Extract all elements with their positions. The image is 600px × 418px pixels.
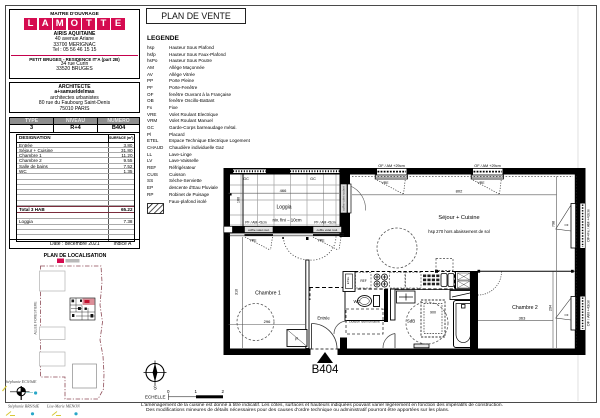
- svg-text:OF: OF: [565, 313, 569, 317]
- svg-text:Stéphanie ECS/SdE: Stéphanie ECS/SdE: [5, 379, 37, 384]
- svg-text:VRE: VRE: [382, 181, 390, 185]
- svg-text:Chambre 2: Chambre 2: [512, 305, 538, 311]
- svg-text:OF / AM +29cm: OF / AM +29cm: [378, 164, 404, 168]
- svg-text:REF: REF: [360, 279, 366, 283]
- svg-text:900: 900: [430, 311, 436, 315]
- svg-text:2: 2: [222, 389, 225, 394]
- svg-text:coffre volet roul.: coffre volet roul.: [317, 228, 338, 232]
- svg-text:798: 798: [552, 221, 556, 227]
- svg-text:ETEL: ETEL: [346, 276, 350, 284]
- svg-text:pl.: pl.: [295, 337, 299, 341]
- svg-text:296: 296: [264, 319, 271, 324]
- svg-text:cloison démontable: cloison démontable: [349, 320, 380, 324]
- svg-text:160: 160: [237, 197, 241, 203]
- svg-text:coffre volet roul.: coffre volet roul.: [248, 228, 269, 232]
- svg-text:Chambre 1: Chambre 1: [255, 291, 281, 297]
- svg-text:VRE: VRE: [478, 181, 486, 185]
- svg-text:ALLEE FORESTIERE: ALLEE FORESTIERE: [34, 301, 38, 335]
- svg-text:Entrée: Entrée: [317, 316, 330, 321]
- svg-text:PF / AM +5cm: PF / AM +5cm: [314, 221, 336, 225]
- svg-text:Lise-Marie MENON: Lise-Marie MENON: [46, 404, 80, 409]
- svg-text:SdB: SdB: [407, 319, 415, 324]
- svg-text:S: S: [153, 386, 157, 392]
- svg-text:Séjour + Cuisine: Séjour + Cuisine: [438, 215, 479, 221]
- svg-text:GC: GC: [243, 177, 249, 181]
- svg-text:WC: WC: [354, 299, 361, 304]
- svg-text:Loggia: Loggia: [276, 205, 291, 211]
- svg-text:802: 802: [456, 189, 463, 194]
- svg-text:hsp 270 hors abaissement de so: hsp 270 hors abaissement de sol: [428, 229, 490, 234]
- svg-text:Stéphanie BRS/SdE: Stéphanie BRS/SdE: [8, 404, 40, 409]
- svg-text:coffre volet roulant: coffre volet roulant: [342, 186, 346, 211]
- svg-text:OF+Fx / AM +43cm: OF+Fx / AM +43cm: [587, 209, 591, 242]
- svg-text:niv. fini − 10cm: niv. fini − 10cm: [272, 217, 301, 222]
- svg-text:0: 0: [167, 389, 170, 394]
- svg-text:OF / AM +29cm: OF / AM +29cm: [474, 164, 500, 168]
- svg-text:VRE: VRE: [318, 239, 326, 243]
- svg-text:VRE: VRE: [250, 239, 258, 243]
- svg-text:363: 363: [519, 316, 526, 321]
- svg-text:310: 310: [235, 289, 239, 295]
- svg-text:ECHELLE: ECHELLE: [145, 395, 166, 400]
- svg-text:466: 466: [280, 188, 287, 193]
- svg-text:PF / AM +5cm: PF / AM +5cm: [245, 221, 267, 225]
- svg-text:OF / AM +43cm: OF / AM +43cm: [587, 300, 591, 326]
- svg-text:OF: OF: [565, 223, 569, 227]
- svg-text:GC: GC: [310, 177, 316, 181]
- svg-text:1: 1: [195, 389, 198, 394]
- svg-text:294: 294: [549, 305, 553, 311]
